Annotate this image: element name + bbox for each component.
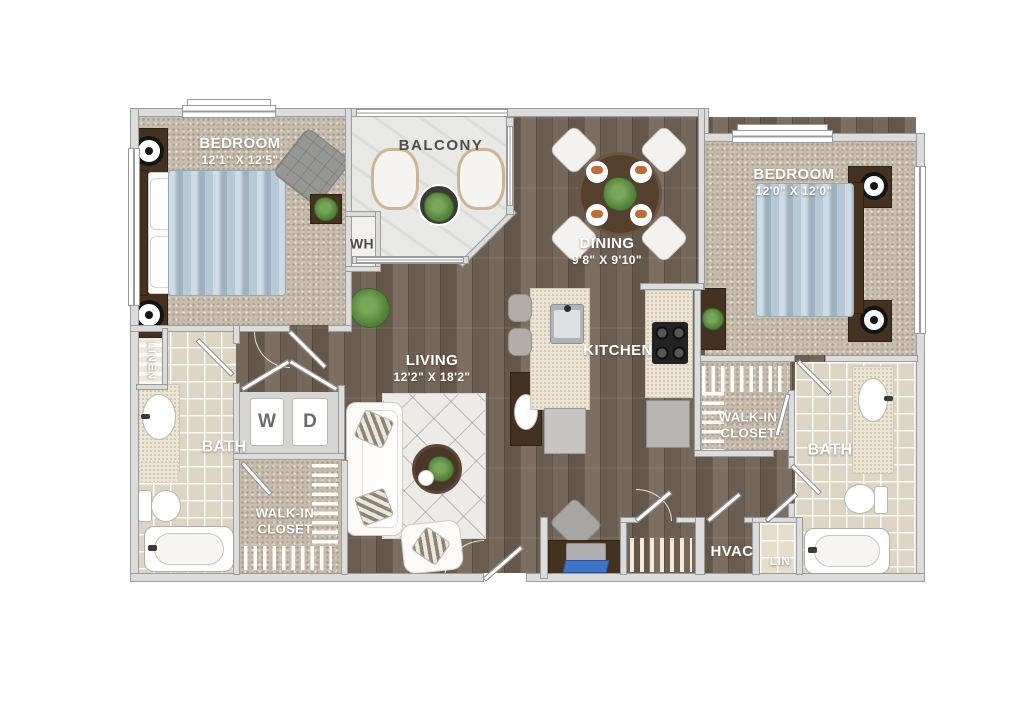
faucet <box>141 414 150 419</box>
laptop-screen <box>562 560 609 573</box>
walk-in-right-label: WALK-IN CLOSET <box>710 409 786 440</box>
toilet <box>844 484 876 514</box>
coat-closet-shelving <box>630 538 692 572</box>
potted-plant <box>424 192 454 222</box>
napkin <box>635 210 647 218</box>
interior-wall <box>540 517 548 579</box>
kitchen-label: KITCHEN <box>583 342 652 360</box>
bar-stool <box>508 294 532 322</box>
floor-plan: W D <box>0 0 1024 724</box>
interior-wall <box>130 325 290 332</box>
window <box>732 130 833 143</box>
toilet <box>151 490 181 522</box>
walk-in-left-shelving-bottom <box>244 546 332 570</box>
interior-wall <box>695 517 705 575</box>
interior-wall <box>233 453 345 460</box>
walk-in-left-label: WALK-IN CLOSET <box>247 505 323 536</box>
faucet <box>148 545 157 551</box>
room-name: BEDROOM <box>199 135 280 153</box>
napkin <box>591 210 603 218</box>
table-lamp <box>860 172 888 200</box>
balcony-label: BALCONY <box>399 137 484 155</box>
linen-label: LINEN <box>144 342 157 380</box>
bath-mat <box>140 460 178 482</box>
bedroom-left-label: BEDROOM 12'1" X 12'5" <box>199 135 280 167</box>
window <box>914 166 926 334</box>
exterior-wall <box>130 573 484 582</box>
potted-plant <box>603 177 637 211</box>
cooktop <box>652 322 688 364</box>
water-heater-label: WH <box>350 236 374 253</box>
potted-plant <box>350 288 390 328</box>
window <box>128 148 140 306</box>
napkin <box>635 166 647 174</box>
dryer: D <box>292 398 328 446</box>
interior-wall <box>752 517 802 523</box>
bathtub-basin <box>814 535 880 567</box>
washer-label: W <box>258 411 276 433</box>
faucet <box>808 547 817 553</box>
bed-blanket <box>168 170 286 296</box>
bathtub-basin <box>154 533 224 565</box>
dishwasher <box>544 408 586 454</box>
bath-right-label: BATH <box>808 440 853 459</box>
potted-plant <box>314 197 338 221</box>
interior-wall <box>345 108 352 332</box>
potted-plant <box>702 308 724 330</box>
interior-wall <box>341 460 348 575</box>
faucet <box>564 305 571 312</box>
dryer-label: D <box>303 411 317 433</box>
toilet-tank <box>874 486 888 514</box>
interior-wall <box>700 355 795 362</box>
bath-left-label: BATH <box>202 437 247 456</box>
interior-wall <box>136 384 168 390</box>
walk-in-right-shelving-top <box>702 366 788 392</box>
room-dims: 12'1" X 12'5" <box>199 153 280 167</box>
living-label: LIVING 12'2" X 18'2" <box>393 352 470 384</box>
interior-wall <box>694 290 701 457</box>
interior-wall <box>698 108 705 290</box>
interior-wall <box>825 355 918 362</box>
hvac-label: HVAC <box>711 543 754 561</box>
interior-wall <box>328 325 352 332</box>
balcony-railing <box>356 109 508 117</box>
interior-wall <box>345 266 381 272</box>
washer: W <box>250 398 284 446</box>
interior-wall <box>338 385 345 460</box>
toilet-tank <box>138 490 152 522</box>
faucet <box>884 396 893 401</box>
lin-closet-label: LIN <box>770 554 791 568</box>
napkin <box>591 166 603 174</box>
sink-basin <box>554 310 580 338</box>
interior-wall <box>233 325 240 344</box>
interior-wall <box>620 517 627 575</box>
decor-dish <box>418 470 434 486</box>
interior-wall <box>796 517 803 575</box>
bar-stool <box>508 328 532 356</box>
interior-wall <box>694 450 774 457</box>
patio-chair <box>371 148 419 210</box>
interior-wall <box>640 283 704 290</box>
window <box>507 126 513 206</box>
patio-chair <box>457 148 505 210</box>
table-lamp <box>860 306 888 334</box>
exterior-wall <box>526 573 925 582</box>
window <box>182 105 276 118</box>
bedroom-right-label: BEDROOM 12'0" X 12'0" <box>753 166 834 198</box>
interior-wall <box>162 328 168 390</box>
bed-blanket <box>756 183 854 317</box>
sliding-door <box>356 257 464 263</box>
interior-wall <box>233 383 240 575</box>
dining-label: DINING 9'8" X 9'10" <box>572 235 642 267</box>
refrigerator <box>646 400 690 448</box>
